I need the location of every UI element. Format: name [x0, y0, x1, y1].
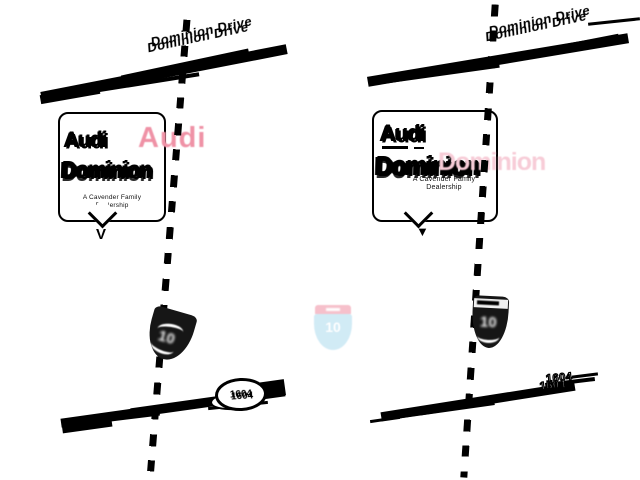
- road-streak: [420, 397, 490, 416]
- interstate-10-shield-icon-faded: 10: [314, 302, 352, 350]
- callout-pointer-glyph-left: V: [96, 226, 106, 243]
- map-canvas: Dominion Drive Audi Audi Dominion A Cave…: [0, 0, 640, 480]
- callout-pointer-glyph-right: ▼: [416, 224, 429, 239]
- loop-1604-sign-left: 1604: [214, 377, 268, 413]
- street-label-dominion-drive-left: Dominion Drive: [151, 13, 253, 50]
- interstate-10-shield-icon-left: 10: [142, 305, 198, 365]
- dealer-tagline-left: A Cavender Family Dealership: [66, 194, 158, 209]
- street-label-dominion-drive-right: Dominion Drive: [489, 2, 591, 39]
- tagline-line-1: A Cavender Family: [66, 194, 158, 202]
- route-number-echo: 1604: [539, 378, 566, 392]
- route-number: 10: [480, 313, 498, 331]
- shield-glitch-mark: [477, 329, 500, 343]
- shield-band: [315, 305, 351, 314]
- shield-band-text-smudge: [326, 308, 340, 311]
- audi-wordmark-left: Audi: [64, 128, 107, 152]
- audi-wordmark-right: Audi: [380, 120, 425, 146]
- road-streak: [588, 17, 640, 25]
- road-streak: [370, 416, 400, 423]
- dealer-name-pink-overlay: Dominion: [438, 148, 545, 177]
- dealer-name-left: Dominion: [61, 156, 152, 183]
- glitch-mark: [414, 147, 424, 149]
- route-number: 10: [314, 319, 352, 335]
- dealer-callout-left[interactable]: Audi Audi Dominion A Cavender Family Dea…: [58, 112, 166, 222]
- shield-band: [474, 298, 508, 309]
- tagline-line-2: Dealership: [398, 184, 490, 192]
- glitch-mark: [382, 146, 408, 149]
- shield-band-text-smudge: [477, 300, 499, 305]
- interstate-10-shield-icon-right: 10: [471, 295, 510, 349]
- tagline-line-1: A Cavender Family: [398, 176, 490, 184]
- route-number: 1604: [230, 388, 253, 400]
- dealer-tagline-right: A Cavender Family Dealership: [398, 176, 490, 192]
- loop-1604-label-right: 1604 1604: [546, 371, 573, 385]
